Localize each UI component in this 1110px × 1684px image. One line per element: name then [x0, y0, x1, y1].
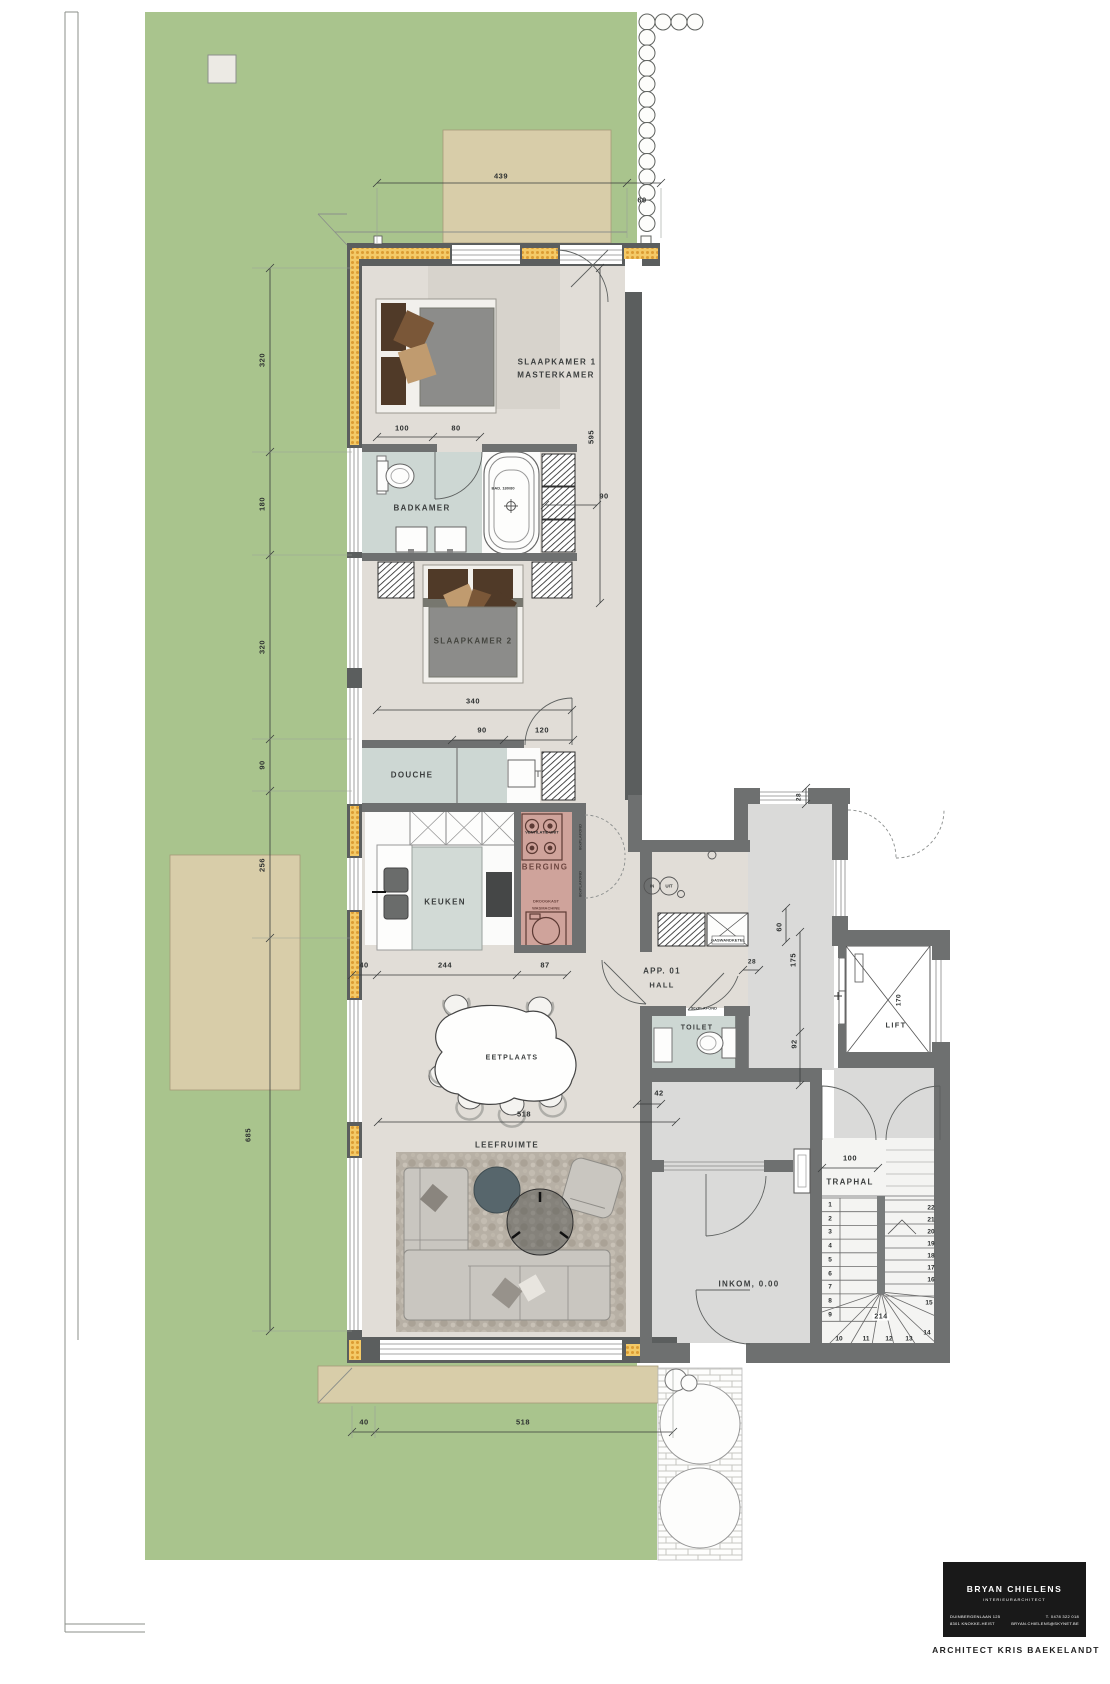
dim-sl1-595: 595 [587, 430, 596, 444]
dim-keuken-244: 244 [438, 961, 452, 970]
dim-keuken-40: 40 [359, 961, 368, 970]
annotation-90xplafond: 90xPLAFOND [691, 1006, 717, 1011]
dim-left-256: 256 [258, 858, 267, 872]
room-label-app01: APP. 01 [643, 967, 681, 976]
stair-step-17: 17 [927, 1265, 934, 1272]
wall-corner-markers [374, 236, 382, 244]
annotation-bad-size: BAD. 180/80 [491, 486, 514, 491]
dim-left-685: 685 [244, 1128, 253, 1142]
dim-top-439: 439 [494, 172, 508, 181]
stair-step-8: 8 [828, 1298, 832, 1305]
room-label-masterkamer: MASTERKAMER [517, 371, 594, 380]
dim-traphal-100: 100 [843, 1154, 857, 1163]
annotation-wasmachine: WASMACHINE [532, 906, 560, 911]
dim-sl1-100: 100 [395, 424, 409, 433]
dim-eetplaats-42: 42 [654, 1089, 663, 1098]
annotation-in: IN [650, 884, 655, 889]
stair-step-21: 21 [927, 1217, 934, 1224]
room-label-slaapkamer1: SLAAPKAMER 1 [518, 358, 597, 367]
room-label-traphal: TRAPHAL [826, 1178, 873, 1187]
annotation-uit: UIT [665, 884, 672, 889]
stair-step-15: 15 [925, 1300, 932, 1307]
stair-step-16: 16 [927, 1277, 934, 1284]
dim-hall-175: 175 [789, 953, 798, 967]
dim-sl2-340: 340 [466, 697, 480, 706]
stair-step-4: 4 [828, 1243, 832, 1250]
stair-step-18: 18 [927, 1253, 934, 1260]
annotation-droogkast: DROOGKAST [533, 899, 559, 904]
room-label-lift: LIFT [885, 1021, 906, 1030]
dim-sl2-120: 120 [535, 726, 549, 735]
stair-step-20: 20 [927, 1229, 934, 1236]
room-label-inkom: INKOM, 0.00 [719, 1280, 780, 1289]
stair-step-22: 22 [927, 1205, 934, 1212]
room-label-slaapkamer2: SLAAPKAMER 2 [434, 637, 513, 646]
annotation-ventilatie-unit: VENTILATIE UNIT [525, 830, 558, 835]
room-label-eetplaats: EETPLAATS [486, 1055, 539, 1062]
dim-hall-92: 92 [790, 1039, 799, 1048]
room-label-badkamer: BADKAMER [393, 504, 450, 513]
dim-hall-28b: 28 [748, 959, 756, 966]
stair-step-6: 6 [828, 1271, 832, 1278]
room-label-berging: BERGING [522, 863, 568, 872]
dim-left-90: 90 [258, 760, 267, 769]
stair-step-1: 1 [828, 1202, 832, 1209]
stair-step-19: 19 [927, 1241, 934, 1248]
plan-drawing [0, 0, 1110, 1684]
stair-step-3: 3 [828, 1229, 832, 1236]
dim-eetplaats-518: 518 [517, 1110, 531, 1119]
email-address: BRYAN.CHIELENS@SKYNET.BE [1011, 1620, 1079, 1627]
dim-sl2-90: 90 [477, 726, 486, 735]
address-line-1: DUINBERGENLAAN 125 [950, 1613, 1000, 1620]
room-label-douche: DOUCHE [391, 771, 433, 780]
annotation-gaswandketel: GASWANDKETEL [711, 938, 745, 943]
dim-traphal-214: 214 [872, 1314, 889, 1321]
lift-shaft [834, 946, 930, 1060]
dim-left-320b: 320 [258, 640, 267, 654]
annotation-80xplafond-1: 80xPLAFOND [578, 824, 583, 850]
floor-plan: SLAAPKAMER 1 MASTERKAMER BADKAMER SLAAPK… [0, 0, 1110, 1684]
dim-sl1-80: 80 [451, 424, 460, 433]
stair-step-2: 2 [828, 1216, 832, 1223]
address-line-2: 8301 KNOKKE-HEIST [950, 1620, 1000, 1627]
designer-address: DUINBERGENLAAN 125 8301 KNOKKE-HEIST [950, 1613, 1000, 1627]
dim-lift-170: 170 [896, 994, 903, 1006]
dim-left-320a: 320 [258, 353, 267, 367]
dim-hall-28a: 28 [796, 793, 803, 801]
phone-number: T. 0478 322 018 [1011, 1613, 1079, 1620]
stair-step-5: 5 [828, 1257, 832, 1264]
dim-bottom-40: 40 [359, 1418, 368, 1427]
dim-top-60: 60 [637, 196, 646, 205]
room-label-hall: HALL [649, 981, 674, 990]
title-block-card: BRYAN CHIELENS INTERIEURARCHITECT DUINBE… [943, 1562, 1086, 1637]
room-label-toilet: TOILET [681, 1025, 714, 1032]
stair-step-9: 9 [828, 1312, 832, 1319]
door-leaf-panel [794, 1149, 810, 1193]
designer-role: INTERIEURARCHITECT [943, 1597, 1086, 1602]
stair-step-13: 13 [905, 1336, 912, 1343]
dim-keuken-87: 87 [540, 961, 549, 970]
dim-left-180: 180 [258, 497, 267, 511]
driveway [658, 1368, 742, 1560]
bed-2 [423, 565, 523, 683]
living-room-furniture [396, 1152, 626, 1332]
room-label-leefruimte: LEEFRUIMTE [475, 1141, 539, 1150]
hedge-circles [639, 14, 703, 245]
stair-step-10: 10 [835, 1336, 842, 1343]
room-label-keuken: KEUKEN [424, 898, 466, 907]
dim-hall-60: 60 [775, 922, 784, 931]
garden-shed-marker [208, 55, 236, 83]
stair-step-14: 14 [923, 1330, 930, 1337]
bed-master [376, 299, 496, 413]
designer-contact: T. 0478 322 018 BRYAN.CHIELENS@SKYNET.BE [1011, 1613, 1079, 1627]
stair-step-12: 12 [885, 1336, 892, 1343]
stair-step-7: 7 [828, 1284, 832, 1291]
dim-bad-90: 90 [599, 492, 608, 501]
designer-name: BRYAN CHIELENS [943, 1584, 1086, 1594]
dim-bottom-518: 518 [516, 1418, 530, 1427]
annotation-80xplafond-2: 80xPLAFOND [578, 871, 583, 897]
property-boundary-lines [65, 12, 145, 1632]
stair-step-11: 11 [863, 1336, 870, 1343]
architect-credit: ARCHITECT KRIS BAEKELANDT [932, 1645, 1100, 1655]
